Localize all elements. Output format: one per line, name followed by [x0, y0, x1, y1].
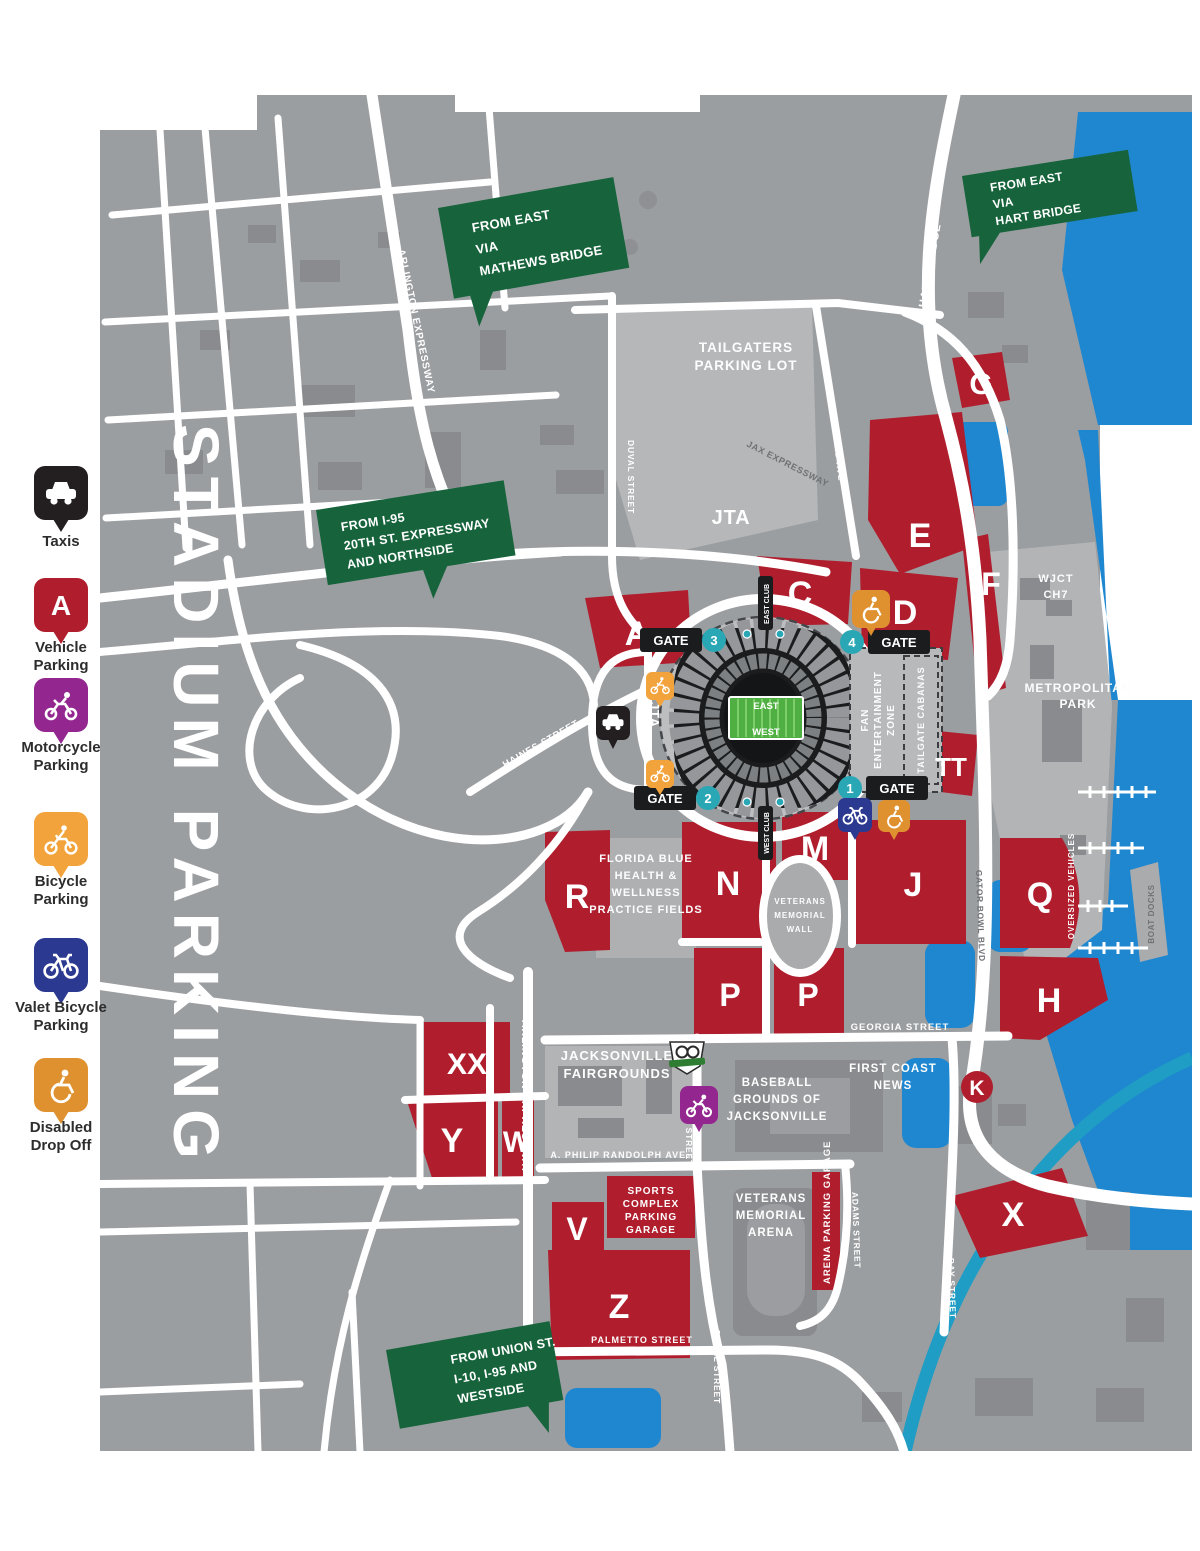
- jta-main-label: JTA: [712, 507, 751, 529]
- metropolitan-l1: METROPOLITAN: [1024, 681, 1131, 695]
- baseball-l1: BASEBALL: [742, 1077, 813, 1089]
- field-east-label: EAST: [753, 701, 779, 712]
- baseball-l2: GROUNDS OF: [733, 1094, 821, 1106]
- field-west-label: WEST: [752, 727, 780, 738]
- legend-moto-l1: Motorcycle: [21, 739, 100, 756]
- gate-2-number: 2: [704, 791, 711, 806]
- lot-v-label: V: [566, 1211, 588, 1247]
- lot-g-label: G: [969, 368, 992, 401]
- arena-l2: MEMORIAL: [736, 1210, 807, 1222]
- lot-m-label: M: [801, 830, 829, 868]
- sports-garage-l4: GARAGE: [626, 1225, 676, 1236]
- tailgaters-l2: PARKING LOT: [695, 358, 798, 373]
- fairgrounds-l2: FAIRGROUNDS: [563, 1066, 670, 1081]
- legend-valet-l1: Valet Bicycle: [15, 999, 107, 1016]
- lot-n-label: N: [716, 865, 741, 903]
- lot-tt-label: TT: [935, 752, 967, 782]
- boat-docks-label: BOAT DOCKS: [1147, 884, 1156, 943]
- legend-item-disabled-drop-off: Disabled Drop Off: [30, 1058, 93, 1154]
- lot-p2-label: P: [797, 977, 818, 1013]
- wjct-l2: CH7: [1043, 589, 1068, 601]
- lot-q-label: Q: [1027, 876, 1053, 914]
- palmetto-label: PALMETTO STREET: [591, 1335, 693, 1345]
- legend-vehicle-l1: Vehicle: [35, 639, 87, 656]
- legend-bike-l2: Parking: [33, 891, 88, 908]
- legend-item-bicycle-parking: Bicycle Parking: [33, 812, 88, 908]
- arena-l1: VETERANS: [736, 1193, 807, 1205]
- lot-y-label: Y: [441, 1122, 464, 1160]
- lot-xx-label: XX: [447, 1048, 487, 1081]
- east-club-label: EAST CLUB: [764, 584, 771, 624]
- arena-l3: ARENA: [748, 1227, 794, 1239]
- florida-blue-l1: FLORIDA BLUE: [599, 853, 692, 865]
- wjct-l1: WJCT: [1038, 573, 1073, 585]
- bay-label: BAY STREET: [946, 1258, 958, 1319]
- legend-vehicle-letter: A: [51, 590, 71, 621]
- lot-d-label: D: [893, 594, 918, 632]
- vet-wall-l3: WALL: [787, 925, 814, 934]
- vet-wall-l2: MEMORIAL: [774, 911, 826, 920]
- lot-r-label: R: [565, 878, 590, 916]
- georgia-label: GEORGIA STREET: [851, 1022, 950, 1033]
- west-club-label: WEST CLUB: [764, 812, 771, 854]
- florida-blue-l4: PRACTICE FIELDS: [589, 904, 702, 916]
- gate-1: 1 GATE: [838, 776, 928, 800]
- lot-j-label: J: [904, 866, 923, 904]
- gate-2-label: GATE: [647, 791, 682, 806]
- gate-4-number: 4: [848, 635, 856, 650]
- map-canvas: EAST WEST EAST CLUB WEST CLUB FAN ENTERT…: [0, 0, 1200, 1551]
- gate-3: GATE 3: [640, 628, 726, 652]
- lot-k-label: K: [969, 1077, 984, 1100]
- gate-4: 4 GATE: [840, 630, 930, 654]
- tailgaters-l1: TAILGATERS: [699, 340, 793, 355]
- lot-e-label: E: [909, 517, 932, 555]
- lot-w-label: W: [503, 1126, 532, 1159]
- randolph-label: A. PHILIP RANDOLPH AVE.: [550, 1150, 689, 1160]
- gate-1-number: 1: [846, 781, 853, 796]
- legend-vehicle-l2: Parking: [33, 657, 88, 674]
- florida-blue-l3: WELLNESS: [611, 887, 680, 899]
- oversized-vehicles-label: OVERSIZED VEHICLES: [1067, 833, 1076, 939]
- vet-wall-l1: VETERANS: [774, 897, 826, 906]
- legend-disabled-l1: Disabled: [30, 1119, 93, 1136]
- baseball-l3: JACKSONVILLE: [727, 1111, 828, 1123]
- fan-zone-label-2: ENTERTAINMENT: [873, 671, 884, 769]
- legend-valet-l2: Parking: [33, 1017, 88, 1034]
- lot-z-label: Z: [609, 1288, 630, 1326]
- legend-bike-l1: Bicycle: [35, 873, 88, 890]
- lot-h-label: H: [1037, 982, 1062, 1020]
- arena-garage-label: ARENA PARKING GARAGE: [822, 1140, 833, 1284]
- sports-garage-l2: COMPLEX: [623, 1199, 679, 1210]
- gate-1-label: GATE: [879, 781, 914, 796]
- legend-disabled-l2: Drop Off: [31, 1137, 93, 1154]
- gate-2: GATE 2: [634, 786, 720, 810]
- page-title: STADIUM PARKING: [160, 424, 232, 1169]
- gate-3-number: 3: [710, 633, 717, 648]
- gate-4-label: GATE: [881, 635, 916, 650]
- legend-moto-l2: Parking: [33, 757, 88, 774]
- lot-k-marker: K: [961, 1071, 993, 1103]
- first-coast-l2: NEWS: [874, 1080, 913, 1092]
- gate-3-label: GATE: [653, 633, 688, 648]
- duval-n-label: DUVAL STREET: [626, 440, 636, 514]
- legend-taxis-label: Taxis: [42, 533, 79, 550]
- legend-item-vehicle-parking: A Vehicle Parking: [33, 578, 88, 674]
- veterans-memorial-wall: VETERANS MEMORIAL WALL: [763, 859, 837, 973]
- florida-blue-l2: HEALTH &: [615, 870, 678, 882]
- fan-entertainment-zone: FAN ENTERTAINMENT ZONE TAILGATE CABANAS: [850, 648, 942, 792]
- sports-garage-l1: SPORTS: [627, 1186, 674, 1197]
- duval-s-label: DUVAL STREET: [712, 1330, 722, 1404]
- metropolitan-l2: PARK: [1059, 697, 1096, 711]
- stadium-parking-map-page: EAST WEST EAST CLUB WEST CLUB FAN ENTERT…: [0, 0, 1200, 1551]
- sports-garage-l3: PARKING: [625, 1212, 677, 1223]
- fairgrounds-l1: JACKSONVILLE: [561, 1048, 673, 1063]
- first-coast-l1: FIRST COAST: [849, 1063, 937, 1075]
- tailgate-cabanas-label: TAILGATE CABANAS: [916, 666, 926, 773]
- lot-x-label: X: [1002, 1196, 1025, 1234]
- fan-zone-label-3: ZONE: [886, 704, 897, 736]
- lot-p1-label: P: [719, 977, 740, 1013]
- fan-zone-label-1: FAN: [860, 709, 871, 732]
- lot-c-label: C: [788, 575, 813, 613]
- lot-f-label: F: [981, 566, 1001, 602]
